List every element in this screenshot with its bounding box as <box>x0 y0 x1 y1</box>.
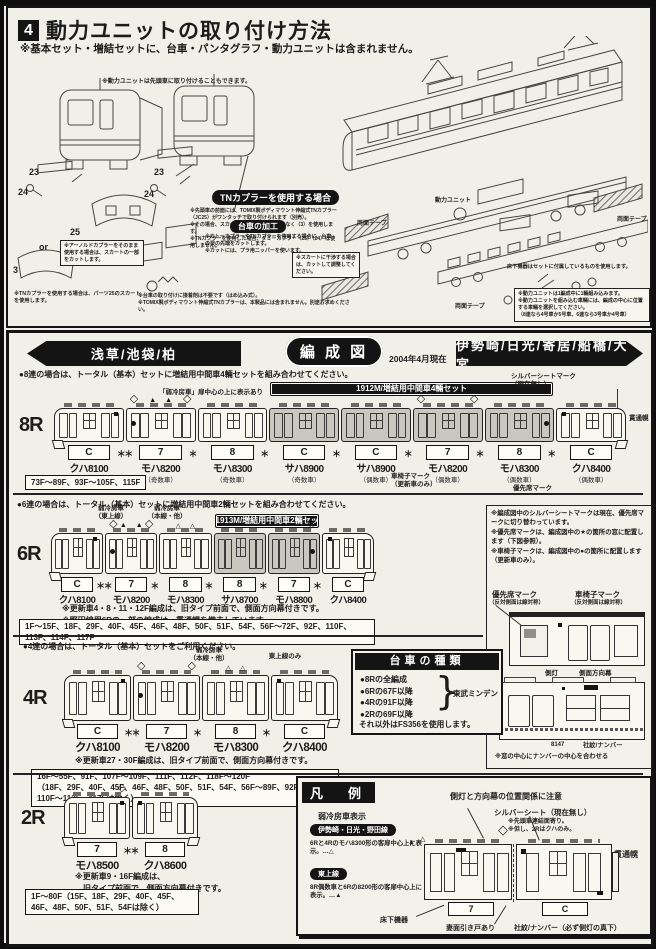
door <box>212 413 221 438</box>
name-cell: サハ8900（奇数車） <box>269 460 339 484</box>
car-plate: 7 <box>146 724 187 739</box>
door <box>109 803 117 834</box>
plates-strip: C7＊＊8＊C＊ <box>63 724 339 739</box>
door <box>178 682 187 716</box>
pantograph-mark: ◇ <box>118 783 126 794</box>
plate-cell: 8＊ <box>198 445 268 460</box>
door <box>93 539 100 569</box>
silver-seat-square <box>328 537 332 541</box>
door <box>170 539 177 569</box>
car-plate: C <box>77 724 118 739</box>
formation-car <box>485 408 555 442</box>
car-plate: C <box>68 445 110 460</box>
car-plate: 8 <box>169 577 201 592</box>
note-line: ●8Rの全編成 <box>360 674 413 686</box>
center-window <box>290 538 300 557</box>
weak-ac-triangles: ▲▲ <box>127 397 195 404</box>
door <box>163 539 170 569</box>
crest-mark <box>597 891 603 895</box>
wheelchair-mark-sub: （反対側面は線対称） <box>571 600 626 607</box>
door <box>603 413 612 438</box>
plate-cell: 8＊ <box>485 445 555 460</box>
formation-car <box>269 408 339 442</box>
paper-sheet: 4 動力ユニットの取り付け方法 ※基本セット・増結セットに、台車・パンタグラフ・… <box>4 6 652 943</box>
door <box>316 682 325 716</box>
note-line: ※動力ユニットは1編成中に1輛組み込みます。 <box>518 291 646 298</box>
weak-ac-triangles: △△ <box>203 664 268 672</box>
wheelchair-mark-dot <box>558 623 562 627</box>
car-name: クハ8400 <box>271 739 338 755</box>
door <box>207 682 216 716</box>
door <box>357 539 364 569</box>
silver-seat-square <box>114 412 118 416</box>
part-label-24: 24 <box>18 187 28 199</box>
coupling-mark: ＊＊ <box>117 447 132 460</box>
plate-cell: C＊ <box>341 445 411 460</box>
coupling-mark: ＊ <box>404 447 412 460</box>
door <box>69 803 77 834</box>
plate-cell: 7＊＊ <box>133 724 200 739</box>
formation-car: ◇ <box>64 797 130 839</box>
roof-vents <box>207 403 257 407</box>
door <box>276 682 285 716</box>
door <box>140 413 149 438</box>
note-line: ●6Rの67F以降 <box>360 686 413 698</box>
formation-car <box>341 408 411 442</box>
arnold-coupler-note: ※アーノルドカプラーをそのまま使用する場合は、スカートの一部をカットします。 <box>60 240 144 266</box>
door <box>201 539 208 569</box>
gangway-bellows <box>612 852 619 892</box>
fleet-number-box: 73F～89F、93F～105F、115F <box>25 475 146 490</box>
cars-strip: ◇◇▲▲◇◇ <box>53 408 627 442</box>
car-plate: C <box>61 577 93 592</box>
plate-cell: C＊ <box>271 724 338 739</box>
door <box>326 539 333 569</box>
rollsign-mark <box>456 848 466 852</box>
bogie-type-footer: それ以外はFS356を使用します。 <box>359 719 475 730</box>
center-window <box>160 802 172 822</box>
gangway-side-label: 貫通幌 <box>629 415 653 423</box>
door <box>146 803 154 834</box>
formation-row-2R: 2R◇78＊＊モハ8500クハ8600※更新車9・16F編成は、 旧タイプ前面で… <box>21 783 199 933</box>
door <box>364 539 371 569</box>
scanned-instruction-sheet: { "top": { "num": "4", "title": "動力ユニットの… <box>0 0 656 949</box>
door <box>111 413 120 438</box>
mark-callout: 車椅子マーク （更新車のみ） <box>391 473 471 489</box>
car-plate: 8 <box>215 724 256 739</box>
tri-filled-glyph: ▲ <box>408 838 415 847</box>
formation-row-8R: ●8連の場合は、トータル（基本）セットに増結用中間車4輛セットを組み合わせてくだ… <box>19 369 651 519</box>
pantograph-mark: ◇ <box>188 661 196 672</box>
door <box>418 413 427 438</box>
door <box>137 803 145 834</box>
formation-section: 浅草/池袋/柏 編 成 図 2004年4月現在 伊勢崎/日光/寄居/船橋/大宮 … <box>6 330 654 947</box>
formation-title-badge: 編 成 図 <box>285 336 383 367</box>
car-plate: 7 <box>77 842 117 857</box>
door <box>69 413 78 438</box>
weak-ac-triangles: ▲▲ <box>106 522 156 529</box>
door <box>460 413 469 438</box>
silver-seat-square <box>562 412 566 416</box>
part-label-23: 23 <box>29 167 39 179</box>
pantograph-mark: ◇ <box>137 661 145 672</box>
power-unit-chassis <box>368 177 626 256</box>
power-unit-label: 動力ユニット <box>435 198 471 206</box>
power-unit-notes: ※動力ユニットは1編成中に1輛組み込みます。※動力ユニットを組み込む車輛には、編… <box>514 288 650 322</box>
name-cell: クハ8400 <box>322 592 374 606</box>
bogie-work-badge: 台車の加工 <box>230 220 286 233</box>
door <box>310 539 317 569</box>
car-parity: （偶数車） <box>556 474 626 484</box>
center-window <box>299 413 312 429</box>
door <box>532 413 541 438</box>
row-id-label: 2R <box>21 807 59 830</box>
pantograph-icon-2 <box>564 36 598 50</box>
car-plate: 7 <box>426 445 468 460</box>
door <box>247 682 256 716</box>
silver-seat-square <box>120 801 124 805</box>
weak-ac-triangles: △△ <box>160 522 210 530</box>
door <box>182 413 191 438</box>
end-door-label: 妻面引き戸あり <box>446 924 495 933</box>
plates-strip: 78＊＊ <box>63 842 199 857</box>
formation-car <box>54 408 124 442</box>
door <box>140 539 147 569</box>
plate-cell: C＊ <box>322 577 374 592</box>
mark-placement-diagram <box>509 612 645 666</box>
door <box>59 413 68 438</box>
door <box>325 682 334 716</box>
formation-car: ◇◇▲▲ <box>126 408 196 442</box>
door <box>279 539 286 569</box>
door <box>245 413 254 438</box>
formation-row-6R: ●6連の場合は、トータル（基本）セットに増結用中間車2輛セットを組み合わせてくだ… <box>17 499 375 649</box>
silver-seat-notes-box: ※編成図中のシルバーシートマークは現在、優先席マークに切り替わっています。※優先… <box>486 505 652 769</box>
row-id-label: 6R <box>17 543 46 566</box>
car-plate: C <box>355 445 397 460</box>
car-parity: （奇数車） <box>269 474 339 484</box>
silver-seat-square <box>121 679 125 683</box>
skirt-adjust-note: ※スカートに干渉する場合は、カットして調整してください。 <box>292 252 360 278</box>
door <box>469 413 478 438</box>
silver-seat-square <box>93 537 97 541</box>
row-id-label: 8R <box>19 414 49 437</box>
door <box>147 539 154 569</box>
door <box>187 682 196 716</box>
car-plate: 7 <box>115 577 147 592</box>
note-line: ※編成図中のシルバーシートマークは現在、優先席マークに切り替わっています。 <box>491 510 645 528</box>
door <box>78 803 86 834</box>
roof-vents <box>566 403 616 407</box>
formation-row-4R: ●4連の場合は、トータル（基本）セットをご利用ください。4R弱冷房車 （本線・他… <box>23 641 339 791</box>
weak-ac-callout: 東上線のみ <box>259 653 311 661</box>
weak-ac-callout: 「弱冷房車」扉中心の上に表示あり <box>131 389 291 397</box>
pantograph-diamond: ◇ <box>498 822 508 839</box>
note-line: ※優先席マークは、編成図中の★の箇所の窓に配置します（下図参照）。 <box>491 529 645 547</box>
roof-vents <box>73 670 121 674</box>
underfloor-note: 床下機器はセットに付属しているものを使用します。 <box>507 264 631 271</box>
sidelight-dot <box>562 687 565 690</box>
coupling-mark: ＊ <box>193 726 201 739</box>
mark-callout: 優先席マーク <box>513 485 593 493</box>
door <box>303 539 310 569</box>
door <box>333 539 340 569</box>
car-name: モハ8300 <box>198 460 268 475</box>
destination-arrow-left: 浅草/池袋/柏 <box>27 341 241 366</box>
cars-strip: ◇ <box>63 797 199 839</box>
wheelchair-dot <box>310 549 315 554</box>
wheelchair-dot <box>110 549 115 554</box>
plate-cell: 8＊ <box>202 724 269 739</box>
door <box>356 413 365 438</box>
door <box>346 413 355 438</box>
door <box>55 539 62 569</box>
door <box>613 413 622 438</box>
door <box>427 413 436 438</box>
note-line: ※TOMIX製ボディマウント伸縮式TNカプラーは、本製品には含まれません。別途お… <box>138 300 358 314</box>
coupling-mark: ＊＊ <box>96 579 111 592</box>
car-parity: （偶数車） <box>485 474 555 484</box>
door <box>109 539 116 569</box>
plate-cell: C＊ <box>556 445 626 460</box>
center-window <box>514 413 527 429</box>
numbering-diagram <box>499 682 645 740</box>
car-name: クハ8400 <box>322 592 374 606</box>
note-line: （8連なら4号車か5号車、6連なら3号車か4号車） <box>518 312 646 319</box>
set-bar: 1913M/増結用中間車2輛セット <box>215 514 319 528</box>
note-line: ※更新車27・30F編成は、旧タイプ前面で、側面方向幕付きです。 <box>75 755 312 767</box>
car-plate: 8 <box>145 842 185 857</box>
door <box>272 539 279 569</box>
name-cell: モハ8300（奇数車） <box>198 460 268 484</box>
door <box>284 413 293 438</box>
end-door-line <box>513 844 514 902</box>
car-plate: 8 <box>211 445 253 460</box>
silver-seat-square <box>277 679 281 683</box>
silver-seat-square <box>138 801 142 805</box>
fleet-number-box: 1F～80F（15F、18F、29F、40F、45F、46F、48F、50F、5… <box>25 889 199 915</box>
coupling-mark: ＊ <box>205 579 213 592</box>
priority-seat-mark <box>524 629 536 638</box>
car-plate: 7 <box>278 577 310 592</box>
car-name: クハ8400 <box>556 460 626 475</box>
row-footnotes: ※更新車27・30F編成は、旧タイプ前面で、側面方向幕付きです。 <box>75 755 312 767</box>
formation-car: ◇ <box>268 533 320 574</box>
legend-car-right <box>516 844 612 900</box>
formation-car <box>64 675 131 721</box>
roof-vents <box>141 792 188 796</box>
tojo-line-note: 8R偶数車と6Rの8200形の客扉中心上に表示。…▲ <box>310 884 422 900</box>
center-window <box>344 538 354 557</box>
center-window <box>227 413 240 429</box>
car-name: モハ8200 <box>126 460 196 475</box>
part-label-or: or <box>39 242 48 254</box>
plates-strip: C7＊＊8＊8＊7＊C＊ <box>50 577 375 592</box>
skirt-use-note: ※TNカプラーを使用する場合は、パーツ25のスカートを使用します。 <box>14 291 144 305</box>
door <box>109 682 118 716</box>
door <box>256 539 263 569</box>
row-id-label: 4R <box>23 687 59 710</box>
center-window <box>236 538 246 557</box>
rollsign-box <box>584 685 598 690</box>
coupling-mark: ＊ <box>189 447 197 460</box>
coupling-mark: ＊ <box>547 447 555 460</box>
pantograph-mark: ◇ <box>307 519 315 530</box>
note-line: ※カトーカプラーやTNカプラーを使用する場合に、台車の梁の先端をカットします。 <box>205 234 333 248</box>
door <box>398 413 407 438</box>
door <box>118 682 127 716</box>
plate-cell: 7＊ <box>413 445 483 460</box>
center-window <box>92 681 104 702</box>
underfloor-label: 床下機器 <box>380 916 408 925</box>
roof-vents <box>64 403 114 407</box>
car-name: モハ8300 <box>202 739 269 755</box>
destination-right-label: 伊勢崎/日光/寄居/船橋/大宮 <box>456 335 643 373</box>
minden-bogie-label: 東武ミンデン <box>453 688 498 699</box>
door <box>138 682 147 716</box>
bogie-type-items: ●8Rの全編成●6Rの67F以降●4Rの91F以降●2Rの69F以降 <box>360 674 413 720</box>
tn-coupler-badge: TNカプラーを使用する場合 <box>212 190 339 205</box>
cars-strip: ◇◇△△ <box>63 675 339 721</box>
door <box>194 539 201 569</box>
roof-vents <box>494 403 544 407</box>
plate-cell: C＊ <box>269 445 339 460</box>
coupling-mark: ＊ <box>476 447 484 460</box>
silver-seat-notes: ※編成図中のシルバーシートマークは現在、優先席マークに切り替わっています。※優先… <box>491 510 645 567</box>
number-centering-note: ※窓の中心にナンバーの中心を合わせる <box>495 753 608 761</box>
roof-vents <box>73 792 120 796</box>
roof-vents <box>279 403 329 407</box>
door <box>561 413 570 438</box>
tape-label-right: 両面テープ <box>617 217 647 225</box>
silver-seat-callout: シルバーシート（現在無し） <box>494 808 591 818</box>
formation-car <box>322 533 374 574</box>
silver-seat-note: シルバーシートマーク （現在無し） <box>511 373 601 389</box>
door <box>78 682 87 716</box>
assembly-notes: ※台車の取り付けに接着剤は不要です（はめ込み式）。※TOMIX製ボディマウント伸… <box>138 293 358 314</box>
name-cell: モハ8300 <box>202 739 269 755</box>
formation-date: 2004年4月現在 <box>389 354 447 365</box>
crest-number-label: 社紋/ナンバー <box>583 742 623 750</box>
door <box>101 413 110 438</box>
door <box>225 539 232 569</box>
coupling-mark: ＊ <box>332 447 340 460</box>
center-window <box>83 413 96 429</box>
note-line: ※動力ユニットを組み込む車輛には、編成の中心に位置する車輛を選択してください。 <box>518 298 646 312</box>
roof-vents <box>221 528 258 532</box>
row-note: ●8連の場合は、トータル（基本）セットに増結用中間車4輛セットを組み合わせてくだ… <box>19 369 353 380</box>
roof-vents <box>59 528 96 532</box>
legend-plate-left: 7 <box>448 902 494 916</box>
door <box>177 803 185 834</box>
legend-title: 凡 例 <box>302 782 375 803</box>
coupling-mark: ＊ <box>262 726 270 739</box>
note-line: ※台車の取り付けに接着剤は不要です（はめ込み式）。 <box>138 293 358 300</box>
weak-ac-title: 弱冷房車表示 <box>318 812 366 822</box>
part-label-25: 25 <box>70 227 80 239</box>
formation-car <box>51 533 103 574</box>
coupling-mark: ＊ <box>313 579 321 592</box>
car-plate: C <box>283 445 325 460</box>
tape-label-bottom: 両面テープ <box>455 304 485 312</box>
part-label-23b: 23 <box>154 167 164 179</box>
destination-arrow-right: 伊勢崎/日光/寄居/船橋/大宮 <box>456 341 643 366</box>
door <box>218 539 225 569</box>
sample-number: 8147 <box>551 742 564 750</box>
name-cell: モハ8300（偶数車） <box>485 460 555 484</box>
door <box>249 539 256 569</box>
door <box>62 539 69 569</box>
car-name: クハ8100 <box>64 739 131 755</box>
sidelight-position-note: 側灯と方向幕の位置関係に注意 <box>450 792 562 802</box>
door <box>216 682 225 716</box>
formation-car: △△ <box>159 533 211 574</box>
name-cell: クハ8400（偶数車） <box>556 460 626 484</box>
silver-seat-mark <box>521 849 526 854</box>
front-note: ※動力ユニットは先頭車に取り付けることもできます。 <box>102 79 251 87</box>
names-strip: クハ8100モハ8200モハ8300クハ8400 <box>63 739 339 755</box>
door <box>173 413 182 438</box>
isesaki-line-badge: 伊勢崎・日光・野田線 <box>310 824 396 836</box>
formation-car <box>271 675 338 721</box>
door <box>69 682 78 716</box>
center-window <box>73 538 83 557</box>
car-name: モハ8200 <box>133 739 200 755</box>
wheelchair-mark-label: 車椅子マーク <box>575 590 620 600</box>
formation-car <box>132 797 198 839</box>
car-plate: 8 <box>223 577 255 592</box>
car-plate: C <box>284 724 325 739</box>
power-unit-section: 4 動力ユニットの取り付け方法 ※基本セット・増結セットに、台車・パンタグラフ・… <box>6 6 652 328</box>
destination-left-label: 浅草/池袋/柏 <box>91 344 177 363</box>
coupling-mark: ＊ <box>259 579 267 592</box>
door <box>499 413 508 438</box>
legend-car-left <box>424 844 512 900</box>
door <box>147 682 156 716</box>
trailer-chassis <box>438 220 648 284</box>
door <box>117 803 125 834</box>
silver-seat-sub2: ※但し、2Rはクハのみ。 <box>508 827 575 835</box>
car-plate: C <box>570 445 612 460</box>
center-window <box>442 413 455 429</box>
priority-seat-mark-label: 優先席マーク <box>492 590 537 600</box>
bogie-type-box: 台車の種類 ●8Rの全編成●6Rの67F以降●4Rの91F以降●2Rの69F以降… <box>351 649 503 735</box>
name-cell: クハ8100 <box>64 739 131 755</box>
pantograph-mark: ◇ <box>470 394 478 405</box>
formation-title: 編 成 図 <box>300 341 368 362</box>
coupling-mark: ＊＊ <box>124 726 139 739</box>
car-plate: 8 <box>498 445 540 460</box>
note-line: ※更新車4・8・11・12F編成は、旧タイプ前面で、側面方向幕付きです。 <box>62 603 324 615</box>
center-window <box>586 413 599 429</box>
formation-car: ◇◇ <box>133 675 200 721</box>
plate-cell: C <box>54 445 124 460</box>
door <box>254 413 263 438</box>
door <box>388 413 397 438</box>
formation-car <box>214 533 266 574</box>
crest-position-label: 社紋/ナンバー（必ず側灯の真下） <box>514 924 621 933</box>
wheelchair-dot <box>131 421 136 426</box>
door <box>326 413 335 438</box>
roof-vents <box>329 528 366 532</box>
door <box>316 413 325 438</box>
note-line: ※車椅子マークは、編成図中の●の箇所に配置します（更新車のみ）。 <box>491 548 645 566</box>
cars-strip: ◇◇▲▲△△◇ <box>50 533 375 574</box>
center-window <box>230 681 242 702</box>
silver-seat-sub1: ※先頭車連結面寄り。 <box>508 819 568 827</box>
center-window <box>370 413 383 429</box>
part-label-3: 3 <box>13 265 18 277</box>
